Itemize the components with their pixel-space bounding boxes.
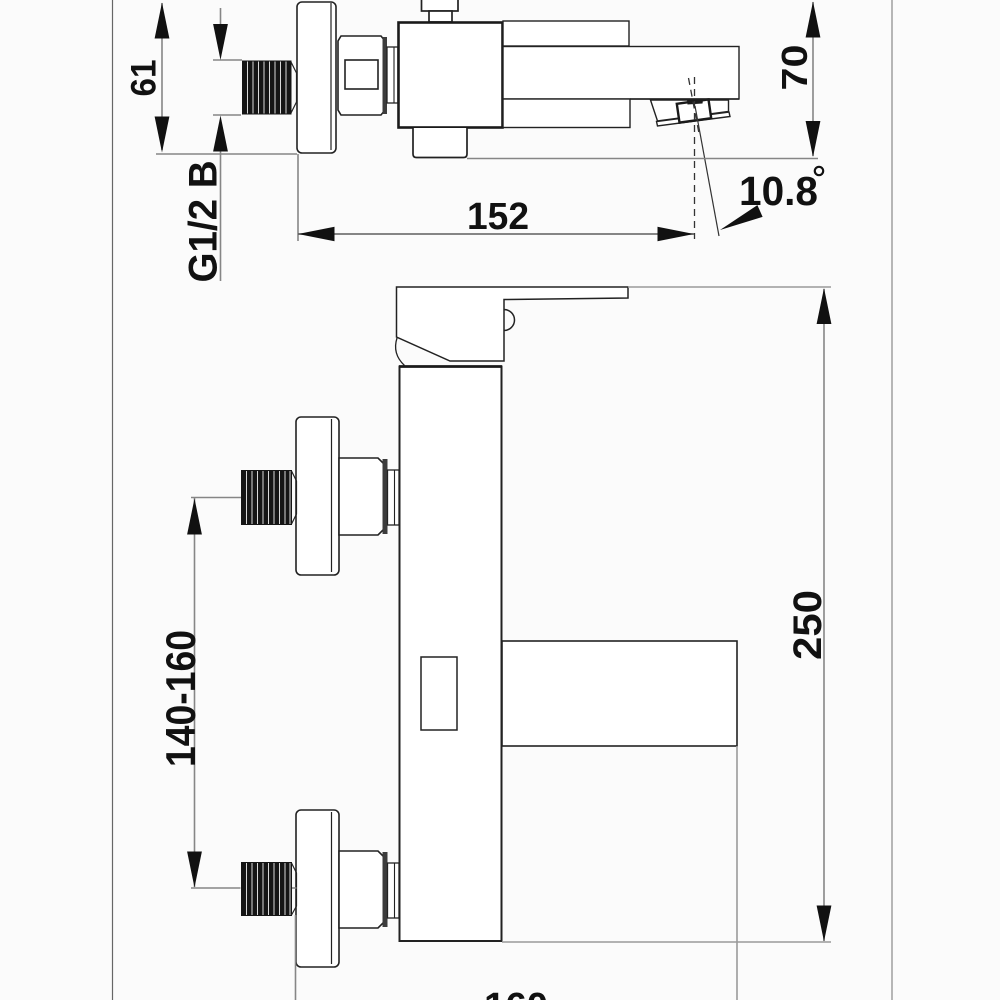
svg-text:250: 250 xyxy=(786,590,830,660)
svg-text:160: 160 xyxy=(484,986,548,1000)
svg-text:61: 61 xyxy=(125,60,164,97)
svg-text:70: 70 xyxy=(774,45,815,91)
svg-text:G1/2 B: G1/2 B xyxy=(182,161,226,283)
svg-text:140-160: 140-160 xyxy=(157,630,204,767)
svg-text:10.8: 10.8 xyxy=(739,168,818,214)
svg-text:152: 152 xyxy=(467,196,529,238)
